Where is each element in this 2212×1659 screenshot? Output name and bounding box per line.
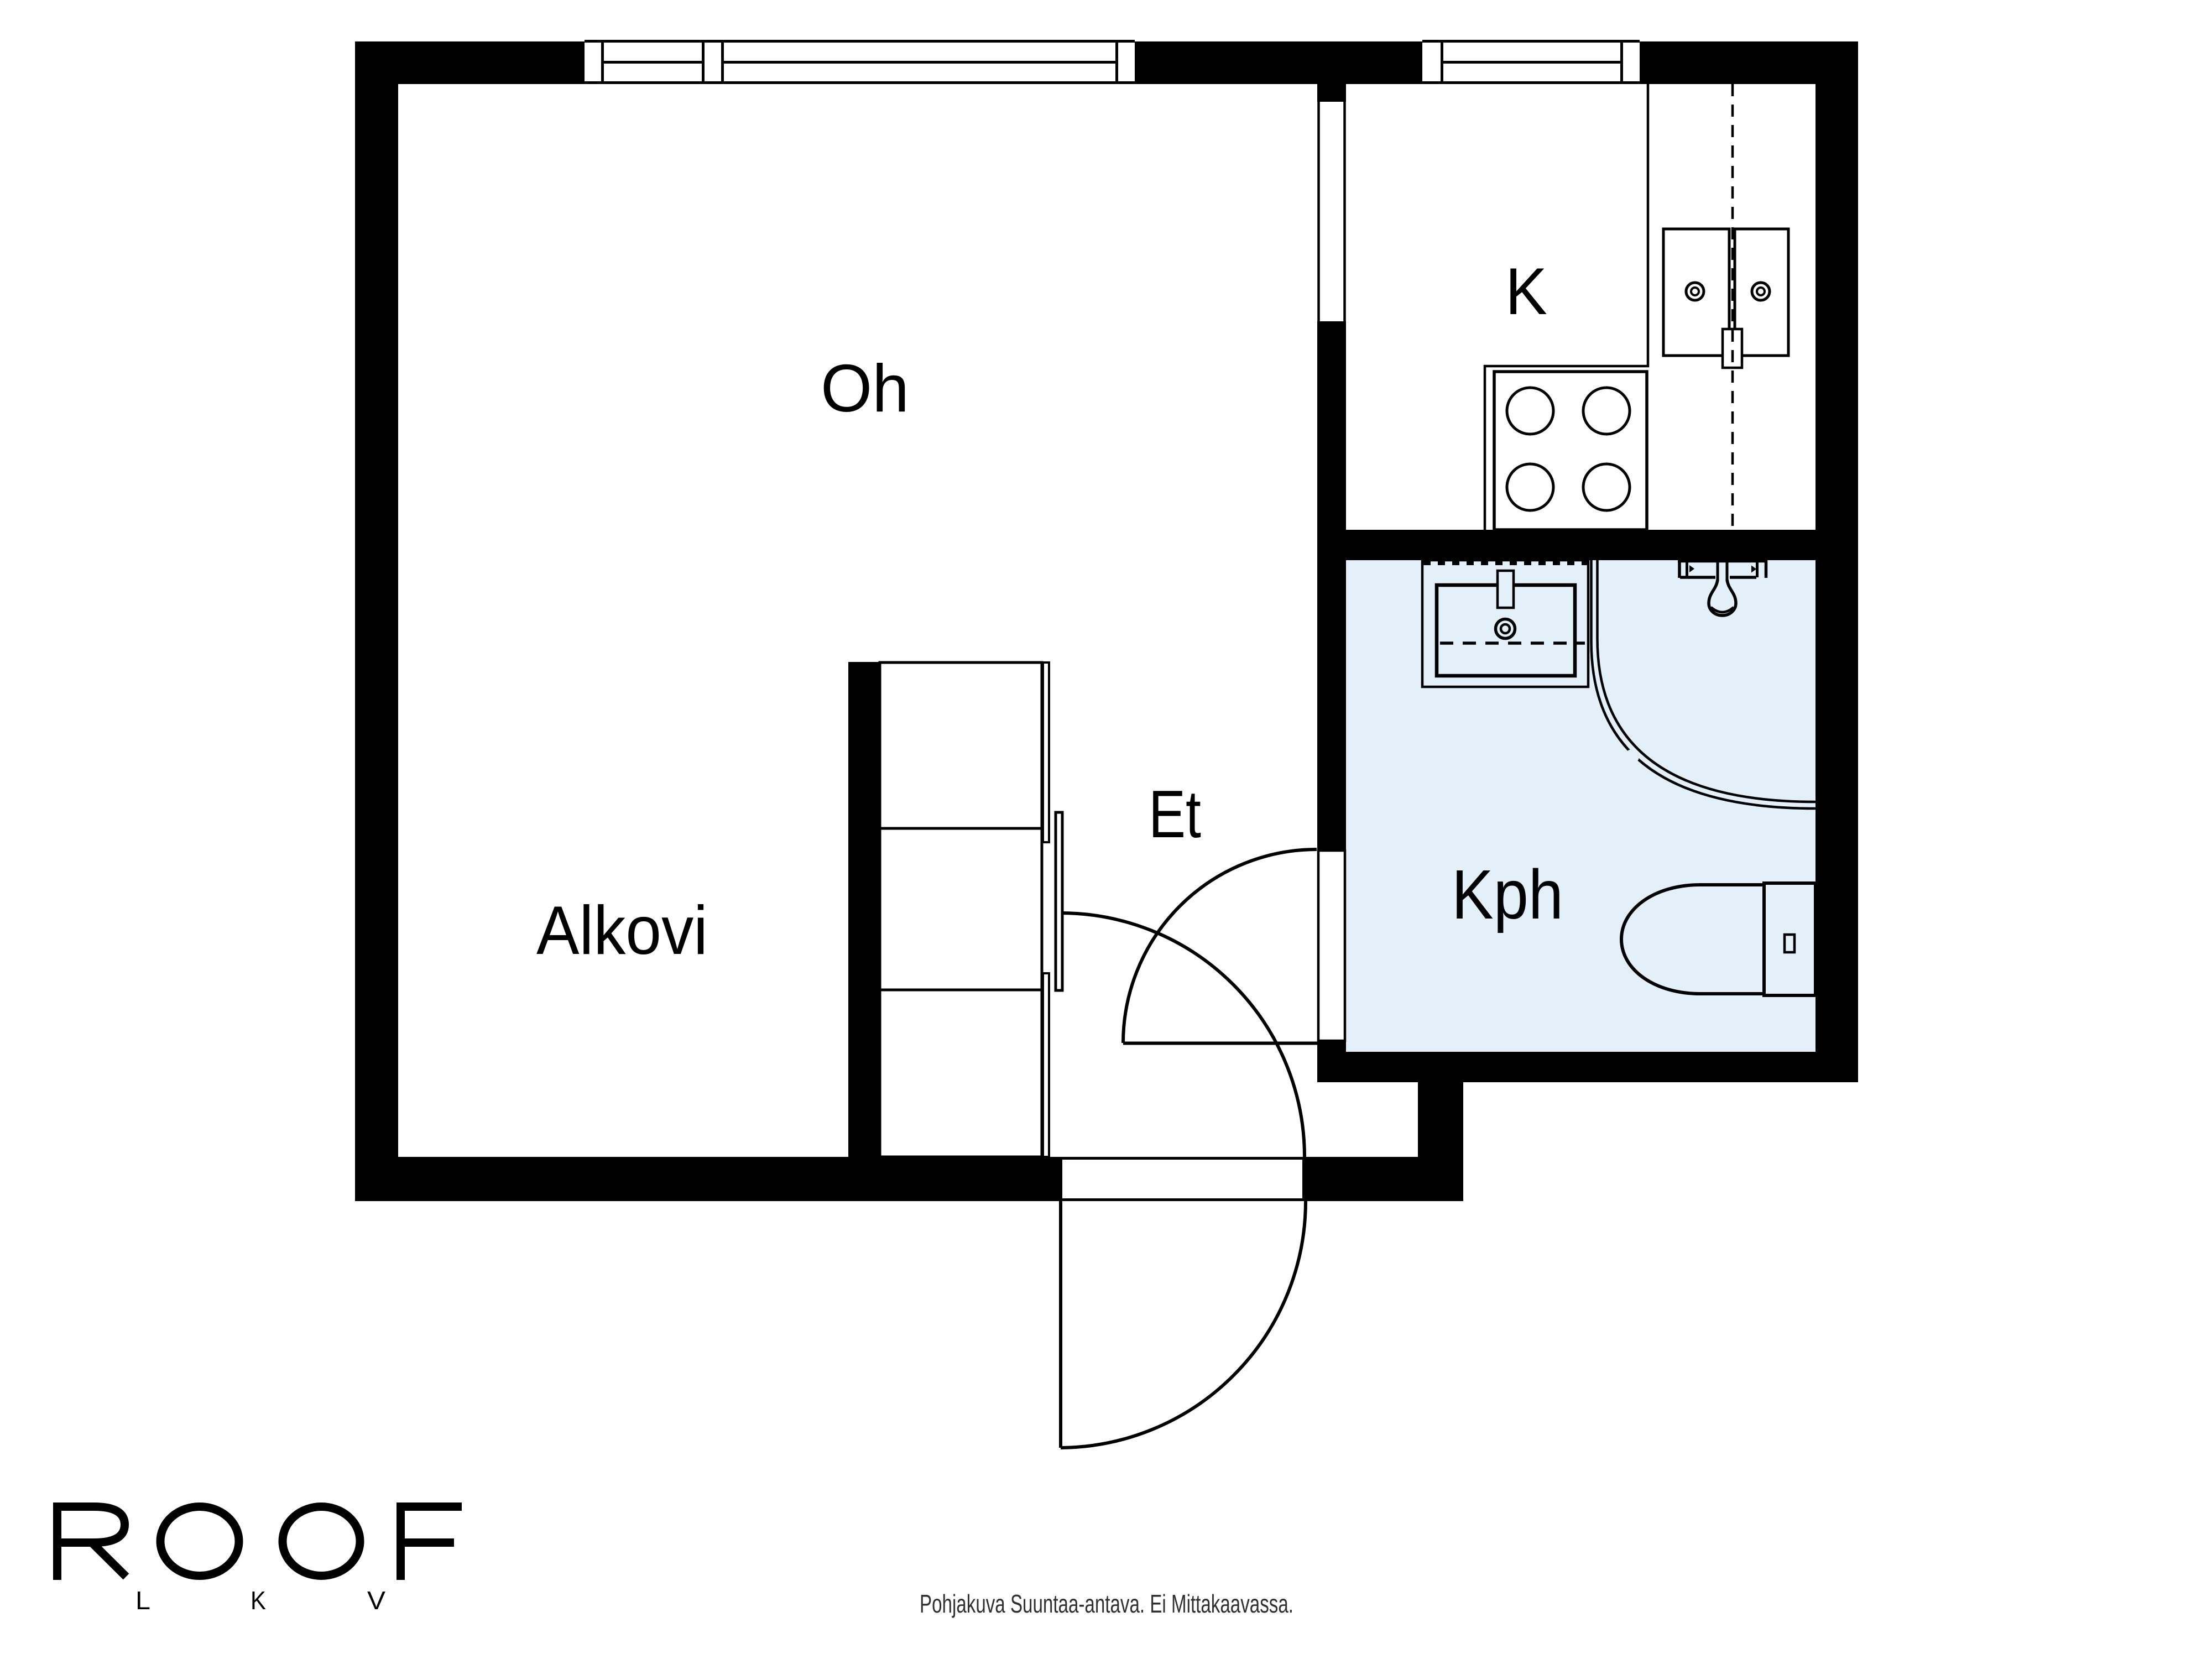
- svg-text:Oh: Oh: [821, 351, 909, 426]
- svg-text:Et: Et: [1149, 776, 1201, 852]
- svg-text:Kph: Kph: [1452, 855, 1563, 933]
- svg-text:Pohjakuva Suuntaa-antava. Ei M: Pohjakuva Suuntaa-antava. Ei Mittakaavas…: [920, 1589, 1293, 1618]
- svg-text:V: V: [367, 1586, 385, 1615]
- svg-text:K: K: [251, 1586, 266, 1615]
- svg-text:K: K: [1505, 254, 1547, 328]
- svg-text:Alkovi: Alkovi: [536, 893, 708, 969]
- svg-text:L: L: [135, 1586, 150, 1615]
